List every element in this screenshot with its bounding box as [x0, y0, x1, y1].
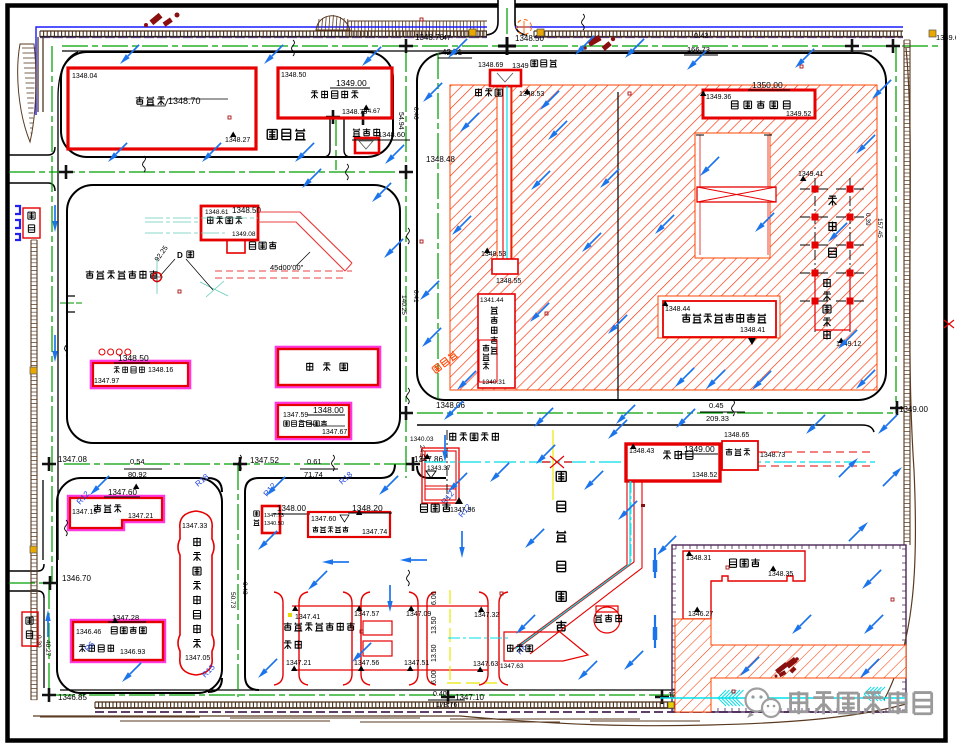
svg-text:1348.52: 1348.52 [692, 472, 717, 479]
svg-text:1348.50: 1348.50 [281, 72, 306, 79]
svg-text:178.76: 178.76 [436, 702, 458, 709]
svg-text:1347.41: 1347.41 [295, 614, 320, 621]
svg-text:45d00'00": 45d00'00" [270, 263, 304, 272]
svg-text:1348.61: 1348.61 [205, 209, 229, 216]
svg-text:1340.50: 1340.50 [264, 521, 284, 527]
svg-text:1347.05: 1347.05 [185, 655, 210, 662]
svg-text:1347.97: 1347.97 [94, 378, 119, 385]
svg-text:0.43: 0.43 [694, 31, 709, 40]
svg-text:1348.55: 1348.55 [496, 278, 521, 285]
svg-text:1349: 1349 [512, 61, 529, 70]
svg-text:1348.31: 1348.31 [686, 555, 711, 562]
svg-text:1347.15: 1347.15 [72, 509, 97, 516]
svg-text:1347.59: 1347.59 [283, 412, 308, 419]
svg-text:1347.51: 1347.51 [404, 660, 429, 667]
svg-text:13.50: 13.50 [431, 616, 438, 634]
svg-text:1349.36: 1349.36 [706, 94, 731, 101]
svg-text:1348.16: 1348.16 [148, 367, 173, 374]
svg-text:71.74: 71.74 [304, 470, 323, 479]
svg-text:1347.60: 1347.60 [311, 516, 336, 523]
svg-text:1348.70: 1348.70 [168, 96, 201, 106]
svg-text:1347.21: 1347.21 [286, 660, 311, 667]
svg-text:1346.46: 1346.46 [76, 629, 101, 636]
svg-text:0.43: 0.43 [241, 582, 248, 595]
svg-text:1348.00: 1348.00 [277, 504, 306, 513]
svg-text:1349.00: 1349.00 [899, 405, 928, 414]
svg-text:1348.65: 1348.65 [724, 432, 749, 439]
svg-text:1343.37: 1343.37 [427, 465, 451, 472]
svg-text:1349.52: 1349.52 [786, 111, 811, 118]
svg-text:D: D [177, 251, 183, 260]
svg-text:1349.08: 1349.08 [232, 231, 256, 238]
svg-text:0.45: 0.45 [709, 401, 724, 410]
svg-text:0.40: 0.40 [433, 691, 447, 698]
svg-text:1348.41: 1348.41 [740, 327, 765, 334]
svg-text:1348.48: 1348.48 [426, 155, 455, 164]
svg-text:1348.73: 1348.73 [760, 452, 785, 459]
svg-text:50.73: 50.73 [229, 592, 236, 609]
svg-text:1348.50: 1348.50 [118, 353, 149, 363]
svg-text:1350.00: 1350.00 [752, 80, 783, 90]
svg-text:1341.44: 1341.44 [480, 297, 504, 304]
svg-text:1348.69: 1348.69 [478, 62, 503, 69]
svg-text:1349.62: 1349.62 [936, 33, 956, 42]
svg-text:166.73: 166.73 [687, 45, 710, 54]
svg-text:1347.21: 1347.21 [128, 513, 153, 520]
svg-text:1348.35: 1348.35 [768, 571, 793, 578]
svg-text:1346.93: 1346.93 [120, 649, 145, 656]
svg-text:13.50: 13.50 [431, 644, 438, 662]
svg-text:1348.20: 1348.20 [352, 503, 383, 513]
svg-text:1348.00: 1348.00 [313, 405, 344, 415]
svg-text:1347.63: 1347.63 [500, 663, 524, 670]
svg-text:0.40: 0.40 [412, 107, 419, 120]
svg-text:1347.32: 1347.32 [474, 612, 499, 619]
svg-text:157.45: 157.45 [876, 218, 883, 238]
svg-text:.47: .47 [441, 35, 451, 42]
svg-text:1347.10: 1347.10 [455, 693, 484, 702]
svg-text:1347.60: 1347.60 [108, 488, 137, 497]
svg-text:1347.09: 1347.09 [406, 611, 431, 618]
svg-text:1348.53: 1348.53 [519, 91, 544, 98]
svg-text:1349.00: 1349.00 [336, 78, 367, 88]
svg-text:140.25: 140.25 [400, 295, 407, 315]
svg-text:0.54: 0.54 [130, 457, 145, 466]
svg-text:1348.04: 1348.04 [72, 73, 97, 80]
svg-text:6.00: 6.00 [431, 670, 438, 684]
svg-text:80.92: 80.92 [128, 470, 147, 479]
svg-text:1347.74: 1347.74 [362, 529, 387, 536]
svg-text:1347.52: 1347.52 [250, 456, 279, 465]
svg-text:1347.67: 1347.67 [322, 429, 347, 436]
svg-text:209.33: 209.33 [706, 414, 729, 423]
svg-text:1340.31: 1340.31 [482, 379, 506, 386]
svg-text:0.39: 0.39 [864, 213, 871, 226]
svg-text:1348.27: 1348.27 [225, 137, 250, 144]
svg-text:40.27: 40.27 [44, 640, 51, 657]
svg-text:1347.96: 1347.96 [450, 507, 475, 514]
svg-text:1347.08: 1347.08 [58, 455, 87, 464]
svg-text:1349.00: 1349.00 [684, 444, 715, 454]
svg-text:1348.50: 1348.50 [232, 206, 261, 215]
svg-text:1348.43: 1348.43 [629, 448, 654, 455]
svg-text:0.61: 0.61 [307, 457, 322, 466]
svg-text:1349.41: 1349.41 [798, 171, 823, 178]
svg-text:1347.56: 1347.56 [354, 660, 379, 667]
svg-text:1347.63: 1347.63 [473, 661, 498, 668]
svg-text:6.00: 6.00 [431, 591, 438, 605]
svg-text:1347.33: 1347.33 [182, 523, 207, 530]
svg-text:1346.85: 1346.85 [58, 693, 87, 702]
svg-text:1348.44: 1348.44 [665, 306, 690, 313]
svg-text:54.94: 54.94 [397, 112, 404, 130]
svg-text:1346.70: 1346.70 [62, 574, 91, 583]
svg-text:1348.60: 1348.60 [378, 130, 405, 139]
svg-text:1340.03: 1340.03 [410, 436, 434, 443]
svg-text:1347.57: 1347.57 [354, 611, 379, 618]
svg-text:0.41: 0.41 [412, 290, 419, 303]
svg-text:1346.27: 1346.27 [688, 611, 713, 618]
